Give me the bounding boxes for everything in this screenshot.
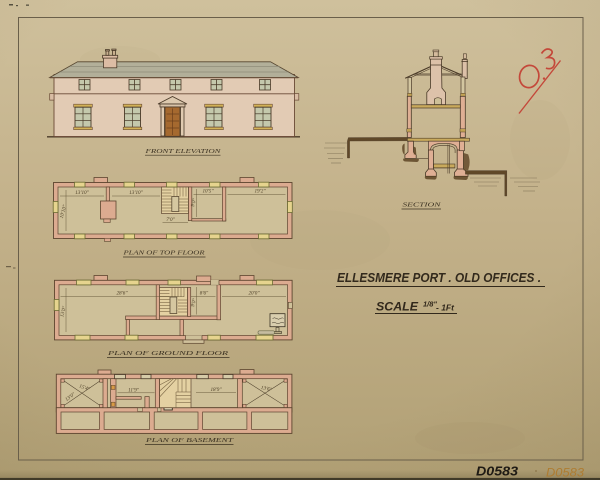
svg-text:FRONT ELEVATION: FRONT ELEVATION xyxy=(144,148,221,155)
svg-text:D0583: D0583 xyxy=(546,468,585,480)
svg-text:13'10": 13'10" xyxy=(129,190,143,196)
svg-text:ELLESMERE PORT . OLD OFFICES .: ELLESMERE PORT . OLD OFFICES . xyxy=(337,271,541,285)
svg-text:7'0": 7'0" xyxy=(166,217,175,223)
svg-text:PLAN OF BASEMENT: PLAN OF BASEMENT xyxy=(145,437,234,444)
svg-text:20'0": 20'0" xyxy=(248,291,260,297)
svg-text:18'9": 18'9" xyxy=(210,387,222,393)
svg-text:13'10": 13'10" xyxy=(75,190,89,196)
svg-text:SECTION: SECTION xyxy=(403,202,442,209)
svg-text:PLAN OF GROUND FLOOR: PLAN OF GROUND FLOOR xyxy=(106,350,228,357)
svg-text:PLAN OF TOP FLOOR: PLAN OF TOP FLOOR xyxy=(122,250,205,257)
svg-text:SCALE: SCALE xyxy=(376,302,418,314)
svg-text:19'2": 19'2" xyxy=(254,189,266,195)
svg-text:8'6": 8'6" xyxy=(200,291,209,297)
svg-text:28'6": 28'6" xyxy=(116,291,128,297)
svg-text:D0583: D0583 xyxy=(476,465,518,479)
svg-text:10'5": 10'5" xyxy=(202,189,214,195)
svg-text:- 1Ft: - 1Ft xyxy=(436,303,455,313)
